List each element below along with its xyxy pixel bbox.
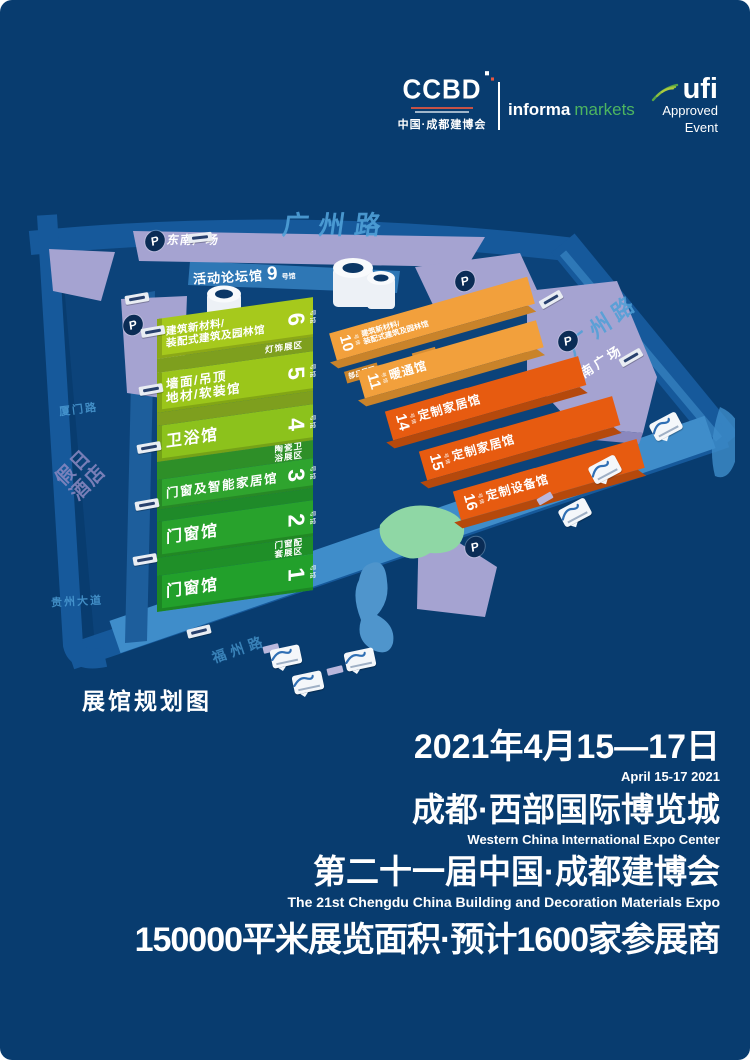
venue-map: 广州路 广州路 厦门路 贵州大道 福州路 假日 酒店 P P P P P 东南广… (15, 195, 735, 715)
ccbd-tagline-mark (415, 111, 469, 113)
date-cn: 2021年4月15—17日 (75, 728, 720, 766)
ccbd-tagline-mark (411, 107, 473, 109)
road-label-guizhou: 贵州大道 (51, 592, 104, 611)
ccbd-dot-icon (491, 77, 494, 80)
venue-cn: 成都·西部国际博览城 (75, 792, 720, 829)
ufi-wordmark: ufi (683, 76, 718, 102)
date-en: April 15-17 2021 (75, 770, 720, 785)
metro-logo-icon (292, 674, 316, 688)
ufi-logo: ufi Approved Event (640, 76, 718, 136)
ufi-event: Event (640, 121, 718, 136)
green-halls: 建筑新材料/ 装配式建筑及园林馆 号馆6 灯饰展区 墙面/吊顶 地材/软装馆 号… (157, 297, 313, 612)
informa-markets-logo: informamarkets (508, 100, 635, 120)
map-title: 展馆规划图 (82, 682, 212, 716)
metro-logo-icon (344, 651, 368, 665)
ufi-approved: Approved (640, 104, 718, 119)
ufi-swoosh-icon (651, 82, 681, 102)
road-label-guangzhou-top: 广州路 (280, 205, 393, 242)
tower-cylinder (367, 271, 395, 309)
event-info: 2021年4月15—17日 April 15-17 2021 成都·西部国际博览… (75, 728, 720, 959)
event-name-en: The 21st Chengdu China Building and Deco… (75, 895, 720, 911)
lake-blob (355, 562, 393, 652)
expo-poster: CCBD 中国·成都建博会 informamarkets ufi Approve… (0, 0, 750, 1060)
ccbd-logo: CCBD 中国·成都建博会 (396, 76, 488, 132)
ccbd-dot-icon (485, 71, 489, 75)
metro-logo-icon (270, 648, 294, 662)
ccbd-subtitle: 中国·成都建博会 (396, 116, 488, 132)
brand-divider (498, 82, 500, 130)
venue-en: Western China International Expo Center (75, 833, 720, 848)
event-name-cn: 第二十一届中国·成都建博会 (75, 854, 720, 891)
stats-line: 150000平米展览面积·预计1600家参展商 (75, 921, 720, 959)
ccbd-wordmark: CCBD (402, 75, 481, 102)
